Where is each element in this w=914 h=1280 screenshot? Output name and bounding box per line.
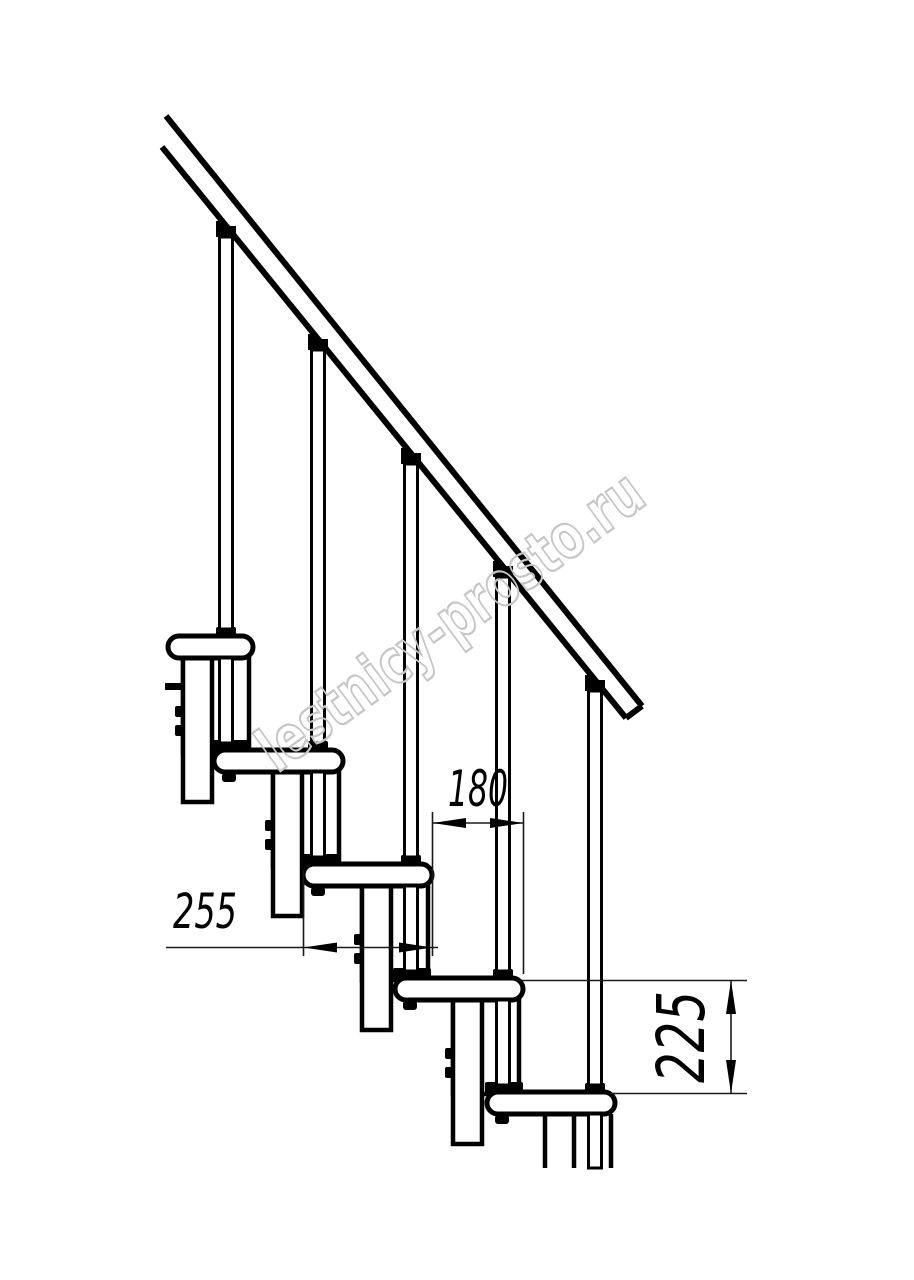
bolt — [445, 1067, 454, 1078]
bolt — [354, 934, 363, 945]
module-column — [362, 884, 391, 1030]
baluster-rod-lower — [497, 1000, 510, 1085]
module-column — [273, 770, 302, 916]
baluster-rod-lower — [405, 886, 418, 971]
under-tread-bolt — [311, 887, 325, 896]
tread-3 — [303, 864, 432, 886]
baluster-3 — [401, 448, 421, 971]
baluster-rod — [220, 237, 233, 629]
under-tread-bolt — [222, 773, 236, 782]
baluster-rod-lower — [220, 658, 233, 743]
bracket-tab — [165, 683, 183, 690]
bolt — [175, 725, 184, 736]
tread-4 — [395, 978, 523, 1000]
dimension-label-tread-depth: 255 — [173, 884, 237, 940]
baluster-2 — [308, 334, 328, 857]
baluster-rod — [589, 691, 602, 1085]
module-column — [453, 998, 482, 1144]
bolt — [445, 1048, 454, 1059]
bolt — [265, 839, 274, 850]
drawing-page: 180 255 225 lestnicy-prosto.ru — [0, 0, 914, 1280]
tread-1 — [168, 636, 253, 658]
bolt — [265, 820, 274, 831]
baluster-rod-lower — [589, 1114, 602, 1168]
module-column — [183, 656, 212, 802]
under-tread-bolt — [495, 1115, 509, 1124]
dimension-label-rise: 225 — [643, 991, 720, 1083]
dimension-label-run: 180 — [448, 760, 508, 818]
bolt — [175, 706, 184, 717]
staircase-technical-drawing: 180 255 225 lestnicy-prosto.ru — [0, 0, 914, 1280]
tread-5 — [487, 1092, 615, 1114]
bolt — [354, 953, 363, 964]
baluster-rod-lower — [312, 772, 325, 857]
baluster-1 — [216, 221, 236, 743]
under-tread-bolt — [403, 1001, 417, 1010]
